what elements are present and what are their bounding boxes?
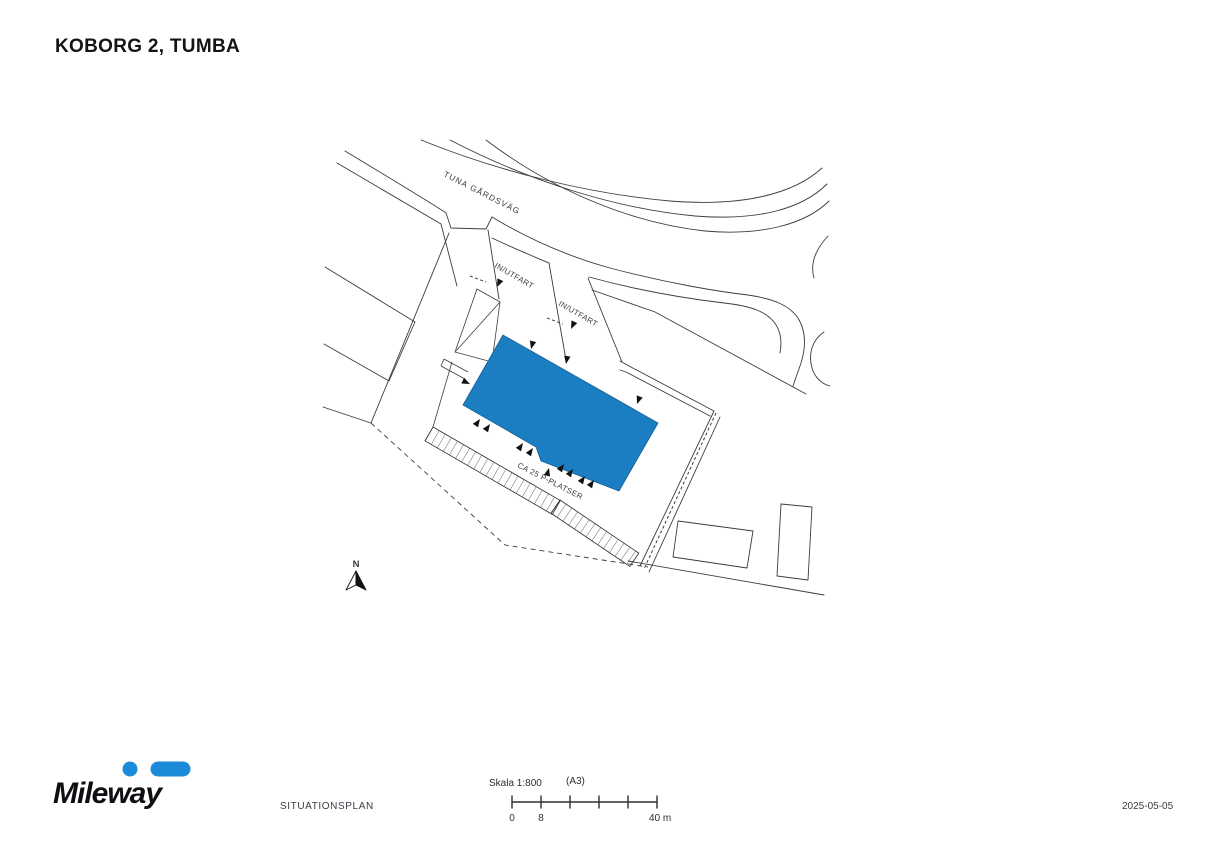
plot-outline-southeast bbox=[673, 521, 753, 568]
scale-tick-label-0: 0 bbox=[509, 813, 515, 824]
arrowhead-icon bbox=[563, 356, 571, 365]
path-strip-edge bbox=[649, 417, 720, 572]
ramp-diagonal bbox=[456, 302, 500, 351]
dock-step bbox=[444, 359, 468, 372]
north-arrow-icon: N bbox=[346, 559, 366, 590]
driveway2-marker bbox=[547, 318, 563, 324]
door-arrow-icon bbox=[461, 378, 471, 387]
door-arrow-icon bbox=[526, 446, 536, 456]
mileway-wordmark: Mileway bbox=[53, 777, 161, 811]
entrance-label-1: IN/UTFART bbox=[493, 261, 535, 291]
document-type-label: SITUATIONSPLAN bbox=[280, 801, 374, 812]
scale-label: Skala 1:800 bbox=[489, 778, 542, 789]
plan-sheet: KOBORG 2, TUMBA bbox=[0, 0, 1220, 856]
road-line bbox=[486, 140, 829, 232]
scale-ruler bbox=[512, 796, 657, 809]
scale-tick-label-8: 8 bbox=[538, 813, 544, 824]
sidewalk-line bbox=[589, 277, 781, 353]
road-label: TUNA GÅRDSVÄG bbox=[442, 169, 522, 216]
sidewalk-line bbox=[492, 238, 549, 263]
entrance-arrow-icon bbox=[568, 320, 577, 330]
logo-dot-icon bbox=[123, 762, 138, 777]
driveway-apron bbox=[446, 213, 492, 229]
yard-edge bbox=[433, 362, 452, 427]
driveway2-edge-arrowline bbox=[549, 263, 566, 360]
scale-bar: Skala 1:800 (A3) 0 8 40 m bbox=[486, 772, 696, 824]
road-tuna-gardsvag bbox=[337, 140, 830, 386]
entrance-arrow-icon bbox=[494, 278, 503, 288]
dock-step bbox=[441, 359, 465, 379]
path-strip-centerline bbox=[644, 413, 716, 569]
driveway1-marker bbox=[470, 276, 486, 282]
door-arrow-icon bbox=[473, 417, 483, 427]
road-line bbox=[811, 332, 831, 386]
parking-row bbox=[551, 500, 639, 566]
plot-outline-southeast bbox=[777, 504, 812, 580]
paper-size-label: (A3) bbox=[566, 776, 585, 787]
ramp-outline bbox=[455, 289, 500, 362]
road-line bbox=[813, 236, 828, 278]
door-arrow-icon bbox=[528, 340, 536, 349]
entrance-label-2: IN/UTFART bbox=[557, 299, 599, 329]
scale-tick-label-40: 40 m bbox=[649, 813, 671, 824]
date-label: 2025-05-05 bbox=[1122, 801, 1173, 812]
door-arrow-icon bbox=[634, 395, 643, 405]
page-title: KOBORG 2, TUMBA bbox=[55, 36, 240, 58]
door-arrow-icon bbox=[516, 441, 526, 451]
north-label: N bbox=[353, 559, 360, 570]
road-curb-line bbox=[345, 151, 446, 213]
site-plan-drawing: TUNA GÅRDSVÄG IN/UTFART IN/UTFART CA 25 … bbox=[320, 130, 830, 620]
boundary-solid-corner bbox=[323, 407, 371, 423]
sidewalk-line bbox=[337, 163, 441, 224]
boundary-line-west bbox=[371, 233, 449, 423]
door-arrow-icon bbox=[483, 422, 493, 432]
plot-outline-west bbox=[324, 267, 415, 381]
plot-outline-east bbox=[592, 290, 806, 394]
logo-pill-icon bbox=[151, 762, 191, 777]
